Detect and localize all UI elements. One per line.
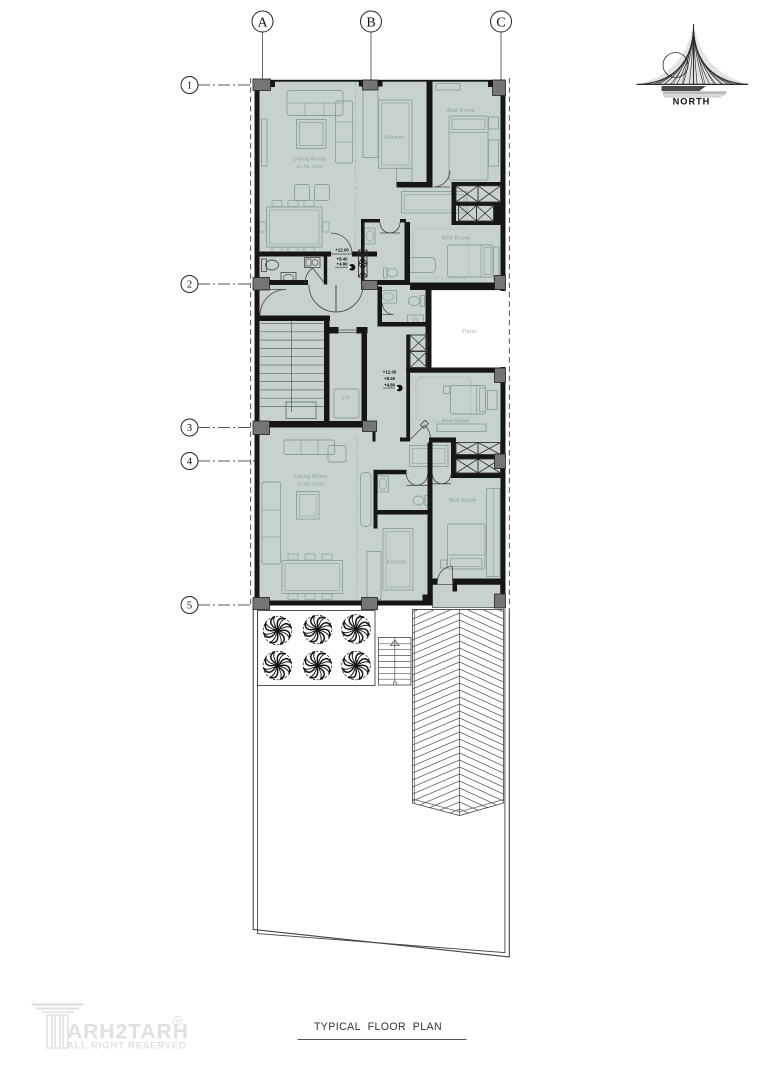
svg-text:A: A bbox=[257, 16, 268, 31]
svg-text:Bed Room: Bed Room bbox=[442, 419, 470, 425]
svg-text:+12.00: +12.00 bbox=[335, 247, 349, 252]
svg-text:TYPICAL FLOOR PLAN: TYPICAL FLOOR PLAN bbox=[314, 1021, 442, 1033]
svg-text:+8.40: +8.40 bbox=[384, 376, 396, 381]
svg-text:+4.80: +4.80 bbox=[337, 262, 349, 267]
svg-text:S=76.11m²: S=76.11m² bbox=[297, 164, 324, 169]
svg-text:Living Room: Living Room bbox=[293, 157, 326, 163]
svg-text:B: B bbox=[366, 16, 375, 31]
svg-text:Bed Room: Bed Room bbox=[447, 108, 475, 114]
svg-text:Lift: Lift bbox=[342, 396, 351, 402]
svg-text:1: 1 bbox=[187, 81, 192, 92]
svg-text:Bed Room: Bed Room bbox=[449, 498, 477, 504]
svg-text:ALL RIGHT RESERVED: ALL RIGHT RESERVED bbox=[67, 1041, 187, 1052]
svg-text:+8.40: +8.40 bbox=[337, 256, 349, 261]
svg-text:Living Room: Living Room bbox=[294, 474, 327, 480]
svg-text:2: 2 bbox=[187, 280, 192, 291]
svg-text:R: R bbox=[175, 1020, 180, 1026]
svg-text:Patio: Patio bbox=[462, 329, 476, 335]
svg-text:NORTH: NORTH bbox=[673, 97, 711, 107]
svg-text:Kitchen: Kitchen bbox=[387, 560, 407, 566]
svg-text:+4.80: +4.80 bbox=[384, 383, 396, 388]
svg-text:S=69.87m²: S=69.87m² bbox=[297, 482, 324, 487]
svg-text:Kitchen: Kitchen bbox=[384, 135, 404, 141]
svg-text:C: C bbox=[496, 16, 505, 31]
svg-text:5: 5 bbox=[187, 601, 192, 612]
svg-text:3: 3 bbox=[187, 423, 192, 434]
svg-text:4: 4 bbox=[187, 457, 193, 468]
svg-text:+12.00: +12.00 bbox=[383, 369, 397, 374]
svg-text:Bed Room: Bed Room bbox=[442, 236, 470, 242]
